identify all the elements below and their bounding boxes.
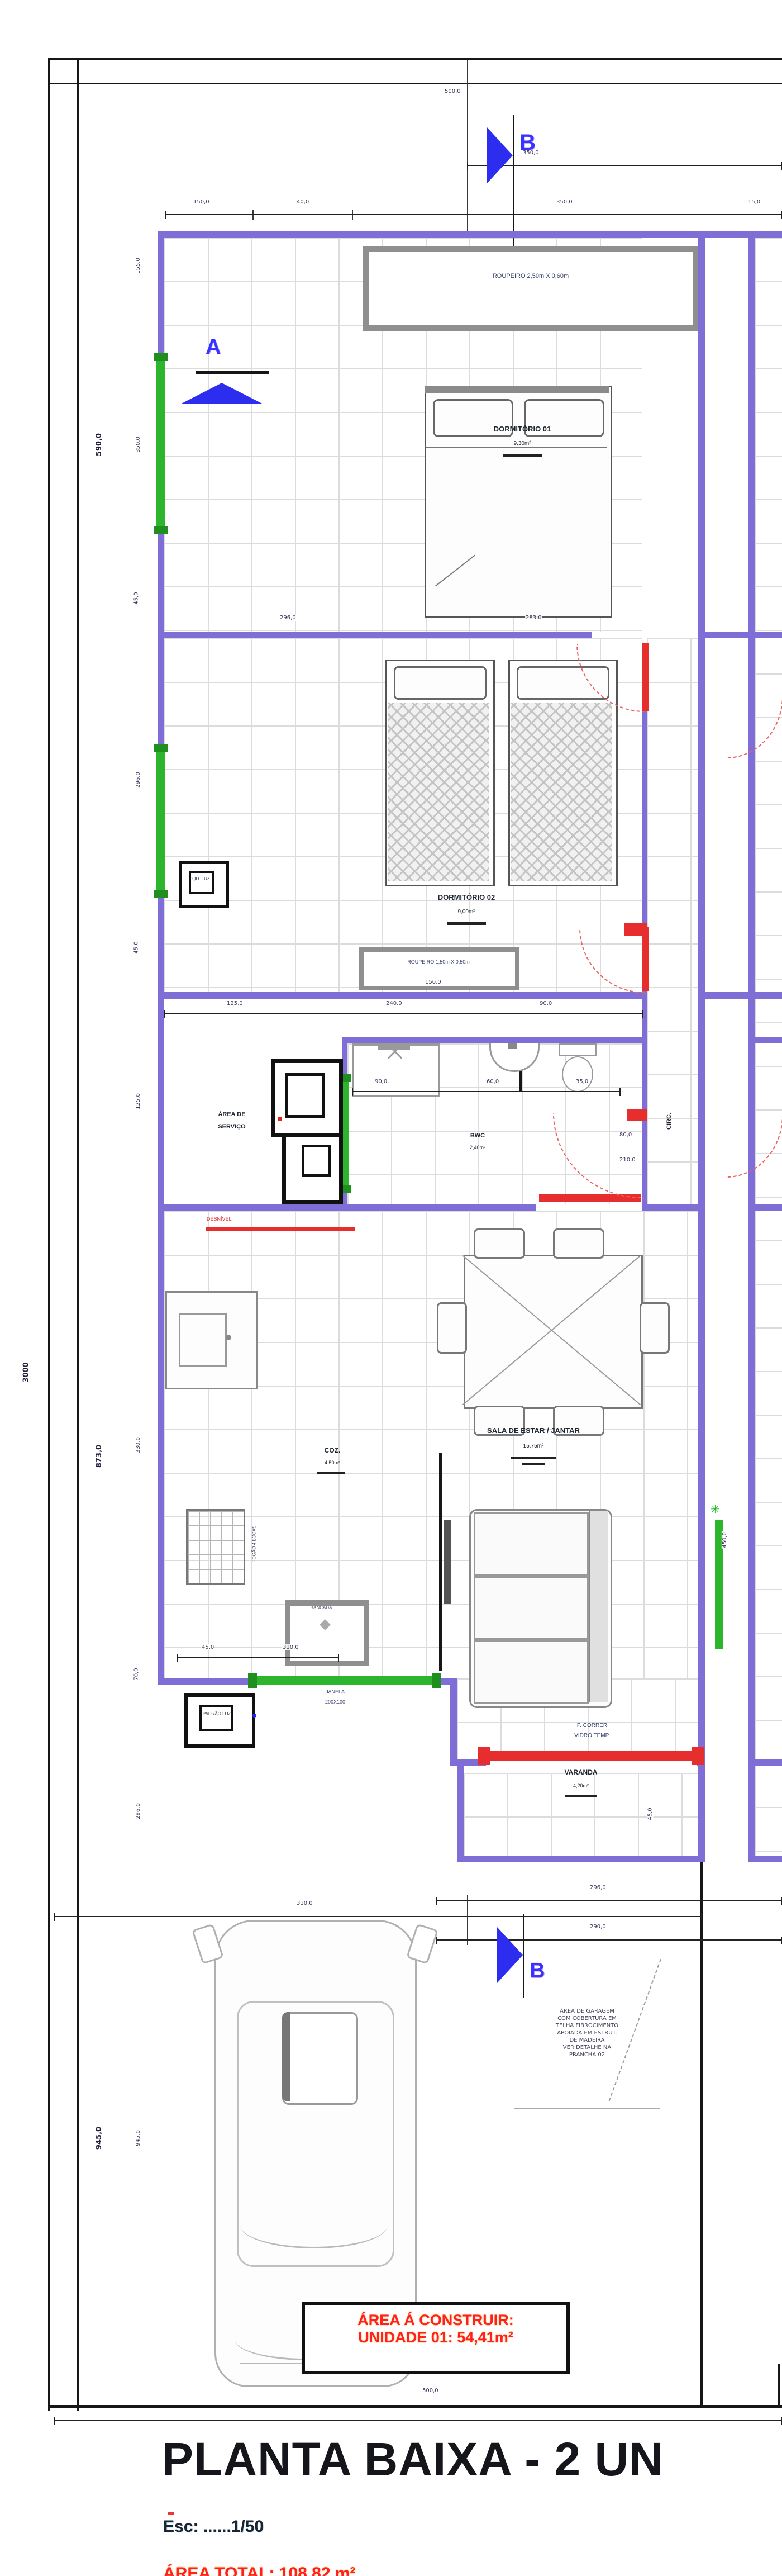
varanda-name: VARANDA bbox=[536, 1768, 626, 1776]
dim-door-b: 210,0 bbox=[619, 1157, 636, 1163]
window-dorm2-cap-bot bbox=[154, 890, 168, 898]
bed-blanket-line bbox=[426, 447, 607, 448]
meter-box-2-label: PADRÃO LUZ bbox=[178, 1711, 256, 1716]
wall-varanda-left bbox=[457, 1766, 464, 1862]
stove-label: FOGÃO 4 BOCAS bbox=[252, 1514, 257, 1575]
wall-sala-top-stub bbox=[755, 1204, 782, 1211]
sofa-cushion-2 bbox=[474, 1576, 589, 1640]
dim-ext-unit02 bbox=[751, 60, 751, 231]
wall-sala-bottom-stub bbox=[755, 1759, 782, 1766]
dim-row-mid-c: 90,0 bbox=[539, 1000, 552, 1007]
dim-left-7: 70,0 bbox=[133, 1667, 140, 1681]
kitchen-counter-tap bbox=[226, 1335, 231, 1340]
wall-kitchen-bottom-a bbox=[158, 1678, 252, 1685]
lot-left-line-outer bbox=[48, 58, 50, 2411]
wall-bwc-top bbox=[342, 1037, 647, 1043]
wall-party bbox=[698, 231, 705, 1862]
bed-single-1-pillow bbox=[394, 666, 487, 700]
laundry-tank-basin bbox=[302, 1145, 331, 1177]
wardrobe-2-label: ROUPEIRO 1,50m X 0,50m bbox=[366, 959, 511, 965]
bench-label: BANCADA bbox=[290, 1605, 352, 1610]
wall-d01-d02 bbox=[164, 632, 592, 638]
dim-left-3: 296,0 bbox=[135, 771, 141, 789]
area-box-line1: ÁREA Á CONSTRUIR: bbox=[305, 2312, 566, 2329]
dorm1-name: DORMITÓRIO 01 bbox=[447, 425, 598, 433]
dorm2-area: 9,00m² bbox=[391, 909, 542, 915]
floor-unit02-strip bbox=[755, 238, 782, 1856]
wall-varanda-bottom-stub bbox=[755, 1856, 782, 1862]
note-line-6: VER DETALHE NA bbox=[514, 2044, 660, 2051]
bwc-dim-line bbox=[352, 1091, 620, 1092]
cozinha-name: COZ. bbox=[302, 1446, 363, 1454]
wall-sala-top-b bbox=[642, 1204, 705, 1211]
dim-left-bold2: 873,0 bbox=[96, 1444, 102, 1468]
dim-row2 bbox=[467, 165, 782, 166]
wall-jog bbox=[450, 1685, 457, 1766]
toilet-bowl bbox=[562, 1056, 593, 1092]
garage-divider-frag bbox=[778, 2364, 780, 2408]
sala-underline bbox=[511, 1457, 556, 1459]
car-sunroof-bar bbox=[282, 2012, 290, 2101]
shower-bar bbox=[378, 1043, 410, 1050]
lot-bottom-dim-line bbox=[54, 2420, 782, 2421]
tv bbox=[444, 1520, 451, 1604]
window-dorm1 bbox=[156, 358, 165, 531]
wall-varanda-bottom bbox=[457, 1856, 705, 1862]
dim-bwc-b: 60,0 bbox=[486, 1079, 499, 1085]
section-b-top-line bbox=[513, 115, 514, 263]
door-varanda-block-r bbox=[692, 1747, 704, 1765]
car-mirror-left bbox=[192, 1923, 224, 1964]
window-kitchen bbox=[252, 1676, 437, 1685]
window-kitchen-cap-r bbox=[432, 1673, 441, 1688]
bwc-area: 2,40m² bbox=[452, 1145, 503, 1150]
dim-left-bold1: 590,0 bbox=[96, 433, 102, 457]
dim-bwc-a: 90,0 bbox=[374, 1079, 388, 1085]
drawing-title: PLANTA BAIXA - 2 UN bbox=[162, 2432, 664, 2487]
varanda-door-label-2: VIDRO TEMP. bbox=[553, 1733, 631, 1739]
lot-left-line-inner bbox=[77, 58, 79, 2411]
dorm2-underline bbox=[447, 922, 486, 925]
dim-left-6: 330,0 bbox=[135, 1436, 141, 1454]
circ-name: CIRC. bbox=[666, 1104, 673, 1138]
dim-kit-a: 45,0 bbox=[201, 1644, 214, 1650]
dim-top1: 500,0 bbox=[444, 88, 461, 94]
servico-label-1: ÁREA DE bbox=[201, 1111, 263, 1118]
stove bbox=[186, 1509, 245, 1585]
window-dorm2-cap-top bbox=[154, 744, 168, 752]
door-varanda-slider bbox=[485, 1751, 697, 1761]
wall-d01-d02-stub bbox=[705, 632, 782, 638]
dim-left-5: 125,0 bbox=[135, 1093, 141, 1110]
section-b-bottom-label: B bbox=[530, 1959, 545, 1983]
dim-left-1: 350,0 bbox=[135, 436, 141, 453]
varanda-door-label-1: P. CORRER bbox=[553, 1723, 631, 1729]
car-windshield bbox=[240, 2202, 388, 2248]
wall-top bbox=[158, 231, 782, 238]
dim-left-2: 45,0 bbox=[133, 591, 140, 605]
dim-mid1: 296,0 bbox=[279, 615, 297, 621]
wall-sala-top-a bbox=[164, 1204, 536, 1211]
area-box: ÁREA Á CONSTRUIR: UNIDADE 01: 54,41m² bbox=[302, 2302, 570, 2374]
dim-row-mid-a: 125,0 bbox=[226, 1000, 244, 1007]
chair-top-1 bbox=[474, 1228, 525, 1259]
servico-label-2: SERVIÇO bbox=[201, 1123, 263, 1130]
dim-bottom: 500,0 bbox=[422, 2388, 439, 2394]
floor-corridor bbox=[647, 638, 698, 1204]
chair-right bbox=[640, 1302, 670, 1354]
dim-left-8: 296,0 bbox=[135, 1802, 141, 1820]
left-dim-line bbox=[140, 214, 140, 2420]
dim-ext-line-top bbox=[467, 60, 468, 231]
dim-kit-b: 310,0 bbox=[282, 1644, 299, 1650]
garage-divider-line bbox=[700, 1862, 703, 2408]
kitchen-window-label-2: 200X100 bbox=[302, 1699, 369, 1705]
bwc-name: BWC bbox=[452, 1132, 503, 1139]
varanda-area: 4,20m² bbox=[536, 1783, 626, 1789]
section-b-bottom-line bbox=[523, 1914, 524, 1998]
note-line-5: DE MADEIRA bbox=[514, 2037, 660, 2044]
tv-partition bbox=[439, 1453, 442, 1671]
sala-area: 15,75m² bbox=[441, 1443, 626, 1449]
door-varanda-block-l bbox=[478, 1747, 490, 1765]
window-kitchen-cap-l bbox=[248, 1673, 257, 1688]
bwc-sink-tap bbox=[508, 1043, 517, 1049]
car-sunroof bbox=[282, 2012, 358, 2105]
bed-headboard bbox=[425, 386, 609, 393]
meter-box-1-inner bbox=[189, 871, 214, 894]
sala-name: SALA DE ESTAR / JANTAR bbox=[441, 1426, 626, 1435]
dim-car: 310,0 bbox=[296, 1900, 313, 1906]
dim-door-a: 80,0 bbox=[619, 1132, 632, 1138]
varanda-underline bbox=[565, 1795, 597, 1797]
kitchen-counter-sink bbox=[179, 1313, 227, 1367]
dim-row-mid-b: 240,0 bbox=[385, 1000, 403, 1007]
dim-ext-party bbox=[702, 60, 702, 231]
dim-top3b: 40,0 bbox=[296, 199, 309, 205]
area-box-line2: UNIDADE 01: 54,41m² bbox=[305, 2329, 566, 2346]
window-dorm1-cap-top bbox=[154, 353, 168, 361]
sofa-cushion-1 bbox=[474, 1512, 589, 1576]
chair-top-2 bbox=[553, 1228, 604, 1259]
window-dorm2 bbox=[156, 749, 165, 894]
toilet-tank bbox=[559, 1043, 597, 1056]
washer-dot bbox=[278, 1117, 282, 1121]
dim-row3 bbox=[165, 214, 782, 215]
dim-left-4: 45,0 bbox=[133, 941, 140, 954]
dim-top3d: 15,0 bbox=[747, 199, 761, 205]
dorm2-name: DORMITÓRIO 02 bbox=[391, 893, 542, 902]
section-a-line bbox=[195, 371, 269, 374]
kitchen-window-label-1: JANELA bbox=[302, 1689, 369, 1695]
step-label: DESNÍVEL bbox=[207, 1216, 232, 1222]
scale-red-tick bbox=[168, 2512, 174, 2515]
bed-single-2-blanket bbox=[511, 703, 612, 881]
section-a-label: A bbox=[206, 335, 221, 359]
step-strip bbox=[206, 1227, 355, 1231]
note-line-7: PRANCHA 02 bbox=[514, 2051, 660, 2058]
section-b-top-label: B bbox=[519, 130, 536, 155]
lot-top-line-inner bbox=[48, 83, 782, 84]
cozinha-area: 4,50m² bbox=[302, 1460, 363, 1465]
wall-corridor-seg2 bbox=[642, 989, 647, 1210]
sofa-cushion-3 bbox=[474, 1640, 589, 1704]
section-a-arrow-icon bbox=[180, 383, 263, 404]
chair-left bbox=[437, 1302, 467, 1354]
dim-left-bold3: 945,0 bbox=[96, 2126, 102, 2150]
drawing-scale: Esc: ......1/50 bbox=[163, 2517, 264, 2536]
lot-top-line-outer bbox=[48, 58, 782, 60]
wardrobe-1 bbox=[363, 246, 698, 331]
meter-box-1-label: QD. LUZ bbox=[168, 876, 235, 881]
dorm1-underline bbox=[503, 454, 542, 457]
dim-top3a: 150,0 bbox=[193, 199, 210, 205]
lot-bottom-line bbox=[48, 2405, 782, 2408]
wall-d02-mid bbox=[164, 992, 642, 999]
sala-underline-2 bbox=[522, 1463, 545, 1465]
wall-bwc-top-stub bbox=[755, 1037, 782, 1043]
note-line-3: TELHA FIBROCIMENTO bbox=[514, 2022, 660, 2029]
meter-box-2-inner bbox=[199, 1705, 233, 1731]
car-mirror-right bbox=[406, 1923, 438, 1964]
dim-row-mid bbox=[164, 1013, 642, 1014]
wardrobe-1-label: ROUPEIRO 2,50m X 0,60m bbox=[391, 273, 670, 279]
dim-lot-depth: 3000 bbox=[23, 1361, 30, 1383]
bed-single-1-blanket bbox=[388, 703, 489, 881]
green-star-icon: ✳ bbox=[711, 1502, 720, 1516]
dim-bwc-c: 35,0 bbox=[575, 1079, 589, 1085]
window-dorm1-cap-bot bbox=[154, 526, 168, 534]
dim-left-9: 945,0 bbox=[135, 2129, 141, 2147]
varanda-dim-2 bbox=[436, 1939, 782, 1941]
dim-top3c: 350,0 bbox=[556, 199, 573, 205]
section-b-bottom-arrow-icon bbox=[497, 1927, 523, 1983]
varanda-dim-tick bbox=[467, 1895, 468, 1945]
dim-var-a: 296,0 bbox=[589, 1885, 607, 1891]
garage-dim-line bbox=[54, 1916, 702, 1917]
note-line-1: ÁREA DE GARAGEM bbox=[514, 2008, 660, 2015]
washer-door bbox=[285, 1073, 325, 1118]
dim-mid2: 283,0 bbox=[525, 615, 542, 621]
dim-sala-rot: 450,0 bbox=[722, 1531, 728, 1549]
wall-corridor-seg1 bbox=[642, 710, 647, 926]
dorm1-area: 9,30m² bbox=[447, 440, 598, 447]
note-line-4: APOIADA EM ESTRUT. bbox=[514, 2029, 660, 2037]
dim-var-rot: 45,0 bbox=[647, 1807, 654, 1820]
kitchen-dim-line bbox=[177, 1657, 338, 1658]
sofa-back bbox=[589, 1511, 608, 1702]
note-leader-line bbox=[514, 2108, 660, 2109]
varanda-dim-1 bbox=[436, 1900, 782, 1901]
wardrobe-2-dim: 150,0 bbox=[425, 979, 442, 985]
wall-d02-mid-stub bbox=[705, 992, 782, 999]
garage-note: ÁREA DE GARAGEM COM COBERTURA EM TELHA F… bbox=[514, 2008, 660, 2058]
floor-plan-canvas: 500,0 350,0 150,0 40,0 350,0 15,0 B 155,… bbox=[0, 0, 782, 2576]
dim-left-0: 155,0 bbox=[135, 257, 141, 274]
dim-var-b: 290,0 bbox=[589, 1924, 607, 1930]
section-b-top-arrow-icon bbox=[487, 127, 513, 183]
cozinha-underline bbox=[317, 1472, 345, 1474]
total-area-note: ÁREA TOTAL: 108,82 m² bbox=[163, 2564, 356, 2576]
wall-unit02 bbox=[748, 231, 755, 1862]
